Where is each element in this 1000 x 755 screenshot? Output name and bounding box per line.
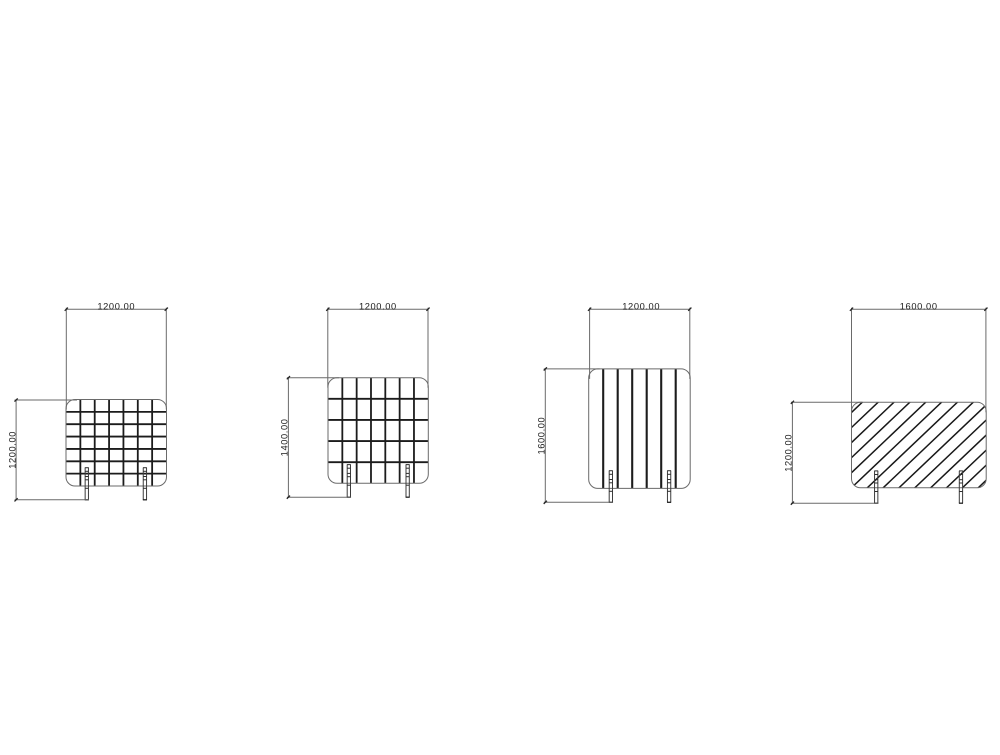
svg-text:1400.00: 1400.00 [280,418,290,456]
svg-text:1200.00: 1200.00 [784,434,794,472]
svg-text:1200.00: 1200.00 [359,301,397,311]
svg-text:1200.00: 1200.00 [622,301,660,311]
svg-text:1200.00: 1200.00 [97,301,135,311]
svg-text:1200.00: 1200.00 [7,431,17,469]
svg-text:1600.00: 1600.00 [537,417,547,455]
svg-text:1600.00: 1600.00 [900,301,938,311]
